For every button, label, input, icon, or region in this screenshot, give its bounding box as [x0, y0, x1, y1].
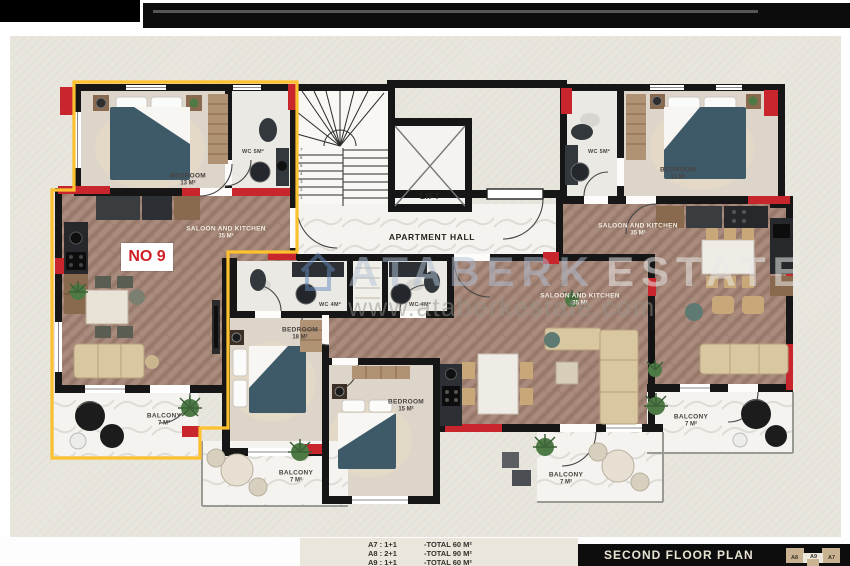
label-a7-saloon: SALOON AND KITCHEN35 M²	[598, 223, 678, 238]
key-plan-thumbnail: A8 A9 A7	[780, 545, 846, 566]
label-a8-saloon: SALOON AND KITCHEN35 M²	[540, 293, 620, 308]
unit-number-badge: NO 9	[121, 243, 173, 271]
legend-row-a8: A8 : 2+1-TOTAL 90 M²	[300, 549, 578, 558]
floor-plan-page: 1 2 3 4 5 6 7	[0, 0, 850, 566]
svg-text:A9: A9	[810, 554, 817, 560]
label-a8-balcony-right: BALCONY7 M²	[549, 472, 583, 487]
floor-title: SECOND FLOOR PLAN	[604, 548, 754, 562]
svg-text:A8: A8	[791, 555, 798, 561]
label-a9-saloon: SALOON AND KITCHEN35 M²	[186, 226, 266, 241]
label-a7-balcony: BALCONY7 M²	[674, 414, 708, 429]
label-a8-wc-right: WC 4M²	[409, 302, 431, 308]
label-apartment-hall: APARTMENT HALL	[389, 232, 475, 242]
label-a9-bedroom: BEDROOM13 M²	[170, 173, 206, 188]
label-a8-balcony-left: BALCONY7 M²	[279, 470, 313, 485]
label-a7-bedroom: BEDROOM13 M²	[660, 167, 696, 182]
svg-text:A7: A7	[828, 555, 835, 561]
label-lift: LIFT	[420, 191, 440, 201]
legend-row-a9: A9 : 1+1-TOTAL 60 M²	[300, 558, 578, 566]
label-a9-wc: WC 5M²	[242, 149, 264, 155]
floor-plan-drawing: 1 2 3 4 5 6 7	[0, 0, 850, 566]
label-a8-wc-left: WC 4M²	[319, 302, 341, 308]
unit-legend: A7 : 1+1-TOTAL 60 M² A8 : 2+1-TOTAL 90 M…	[300, 538, 578, 566]
label-a8-bedroom-18: BEDROOM18 M²	[282, 327, 318, 342]
floor-title-bar: SECOND FLOOR PLAN A8 A9 A7	[578, 544, 850, 566]
label-a9-balcony: BALCONY7 M²	[147, 413, 181, 428]
label-a7-wc: WC 5M²	[588, 149, 610, 155]
label-a8-bedroom-15: BEDROOM15 M²	[388, 399, 424, 414]
legend-row-a7: A7 : 1+1-TOTAL 60 M²	[300, 540, 578, 549]
